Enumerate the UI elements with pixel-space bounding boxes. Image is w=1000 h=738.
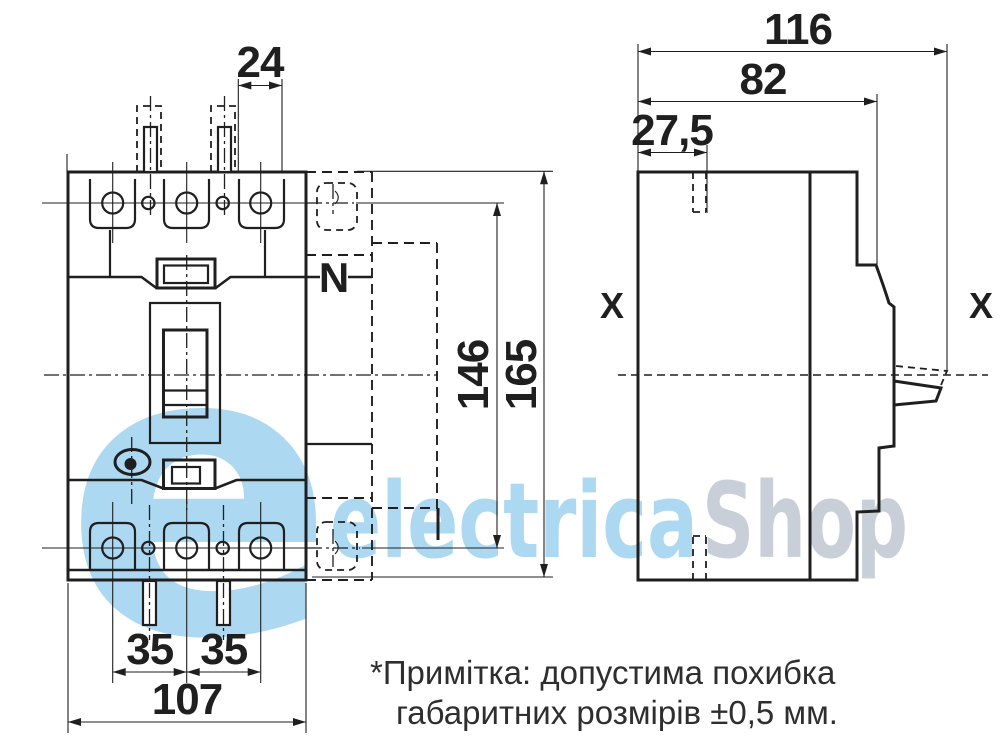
dim-text-24: 24 — [237, 38, 285, 87]
drawing-canvas: e electrica Shop — [0, 0, 1000, 738]
test-button-dot — [125, 458, 137, 470]
dim-text-116: 116 — [764, 5, 832, 54]
note-line-2: габаритних розмірів ±0,5 мм. — [396, 694, 838, 731]
technical-drawing: e electrica Shop — [0, 0, 1000, 738]
section-label-right: X — [969, 285, 993, 326]
dim-text-35-left: 35 — [126, 625, 173, 674]
dim-text-146: 146 — [449, 340, 498, 410]
dim-text-35-right: 35 — [200, 625, 247, 674]
section-label-left: X — [600, 285, 624, 326]
watermark-brand-blue: electrica — [330, 460, 698, 582]
watermark-brand-gray: Shop — [702, 460, 908, 582]
neutral-pole-label: N — [319, 254, 349, 301]
dim-text-27-5: 27,5 — [631, 106, 713, 155]
note-line-1: *Примітка: допустима похибка — [370, 654, 836, 691]
dim-text-107: 107 — [152, 675, 222, 724]
dim-text-82: 82 — [740, 55, 787, 104]
dim-text-165: 165 — [497, 339, 546, 410]
